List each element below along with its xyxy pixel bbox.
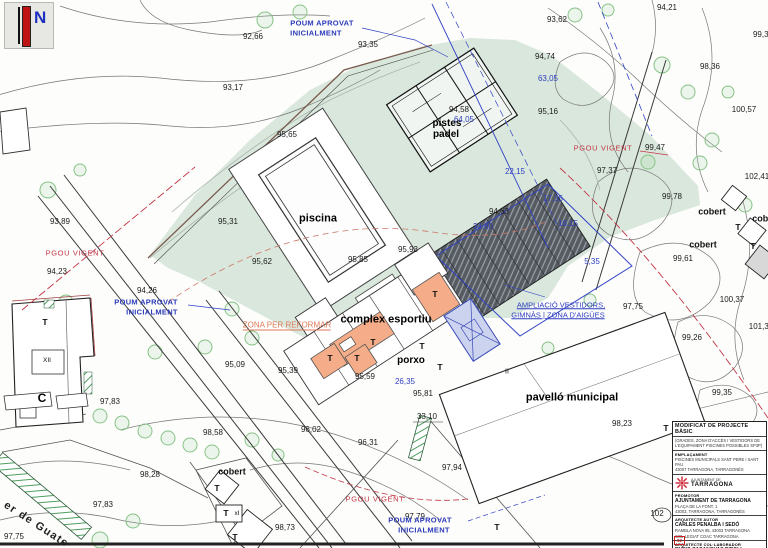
small-mark: XII (43, 358, 51, 365)
elevation-label: 95,39 (278, 367, 298, 375)
elevation-label: 94,63 (489, 208, 509, 216)
elevation-label: 94,74 (535, 53, 555, 61)
building-label: porxo (397, 356, 425, 366)
elevation-label: 97,37 (597, 167, 617, 175)
project-subtitle-2: L'EQUIPAMENT PISCINES POSSIBLES SP3P) (675, 443, 764, 448)
elevation-label: 98,28 (140, 471, 160, 479)
poum-planning-label: INICIALMENT (126, 308, 178, 316)
small-mark: II (505, 369, 509, 376)
elevation-label: 95,93 (398, 246, 418, 254)
dimension-label: 17,35 (543, 195, 563, 203)
logo-caption-big: TARRAGONA (691, 482, 733, 488)
elevation-label: 94,26 (137, 287, 157, 295)
pgou-planning-label: PGOU VIGENT (574, 144, 633, 152)
elevation-label: 98,58 (203, 429, 223, 437)
dimension-label: 26,35 (395, 378, 415, 386)
poum-planning-label: POUM APROVAT (388, 516, 451, 524)
extension-note-label: AMPLIACIÓ VESTIDORS, (517, 301, 605, 309)
tarragona-logo-icon (675, 476, 689, 490)
site-plan-canvas: 93,1792,6693,3595,6593,6294,7495,1694,21… (0, 0, 768, 548)
compass-needle-bar (22, 6, 31, 47)
elevation-label: 95,81 (413, 390, 433, 398)
dimension-label: 16,15 (558, 220, 578, 228)
elevation-label: 95,09 (225, 361, 245, 369)
compass-needle-line (18, 7, 20, 44)
elevation-label: 33,10 (417, 413, 437, 421)
small-mark: xI (234, 511, 239, 518)
elevation-label: 97,75 (4, 533, 24, 541)
north-label: N (34, 8, 46, 28)
elevation-label: 93,35 (358, 41, 378, 49)
elevation-label: 95,59 (355, 373, 375, 381)
title-block: MODIFICAT DE PROJECTE BÀSIC (GRADES, ZON… (672, 421, 767, 548)
elevation-label: 93,62 (547, 16, 567, 24)
poum-planning-label: POUM APROVAT (114, 298, 177, 306)
transformer-mark: T (370, 338, 375, 347)
dimension-label: 5,35 (584, 258, 600, 266)
transformer-mark: T (354, 354, 359, 363)
elevation-label: 96,02 (301, 426, 321, 434)
corner-code-badge: 02 (674, 536, 685, 545)
building-label: padel (433, 130, 459, 140)
dimension-label: 63,05 (538, 75, 558, 83)
project-title: MODIFICAT DE PROJECTE BÀSIC (673, 422, 766, 437)
elevation-label: 93,89 (50, 218, 70, 226)
poum-planning-label: POUM APROVAT (290, 19, 353, 27)
cobert-label: cobert (698, 208, 726, 217)
elevation-label: 93,17 (223, 84, 243, 92)
elevation-label: 97,94 (442, 464, 462, 472)
small-building (0, 108, 30, 154)
reform-zone-label: ZONA PER REFORMAR (243, 322, 331, 331)
transformer-mark: T (663, 424, 668, 433)
elevation-label: 99,31 (753, 31, 768, 39)
transformer-mark: T (419, 342, 424, 351)
elevation-label: 95,16 (538, 108, 558, 116)
elevation-label: 97,75 (623, 303, 643, 311)
elevation-label: 94,23 (47, 268, 67, 276)
transformer-mark: T (494, 523, 499, 532)
extension-note-label: GIMNÀS | ZONA D'AIGÜES (511, 311, 604, 319)
elevation-label: 95,65 (277, 131, 297, 139)
elevation-label: 101,31 (749, 323, 768, 331)
location-line-1: PISCINES MUNICIPALS SANT PERE I SANT PAU (675, 457, 764, 468)
elevation-label: 97,83 (100, 398, 120, 406)
elevation-label: 95,85 (348, 256, 368, 264)
building-label: pistes (433, 119, 462, 129)
transformer-mark: T (437, 363, 442, 372)
elevation-label: 100,57 (732, 106, 756, 114)
transformer-mark: T (42, 318, 47, 327)
dimension-label: 34,80 (473, 223, 493, 231)
elevation-label: 98,36 (700, 63, 720, 71)
promotor-name: AJUNTAMENT DE TARRAGONA (675, 498, 764, 504)
site-plan-drawing (0, 0, 768, 548)
elevation-label: 99,78 (662, 193, 682, 201)
transformer-mark: T (432, 290, 437, 299)
promotor-address-2: 43003, TARRAGONA, TARRAGONÈS (675, 509, 764, 514)
transformer-mark: T (750, 242, 755, 251)
elevation-label: 99,26 (682, 334, 702, 342)
elevation-label: 99,35 (712, 389, 732, 397)
architect-address-2: COL·LEGIAT COAC TARRAGONA (675, 534, 764, 539)
transformer-mark: T (232, 533, 237, 542)
elevation-label: 94,58 (449, 106, 469, 114)
dimension-label: 22,15 (505, 168, 525, 176)
transformer-mark: T (735, 223, 740, 232)
elevation-label: 102 (650, 510, 663, 518)
elevation-label: 92,66 (243, 33, 263, 41)
elevation-label: 99,47 (645, 144, 665, 152)
poum-planning-label: INICIALMENT (398, 526, 450, 534)
location-line-2: 43007 TARRAGONA, TARRAGONÈS (675, 467, 764, 472)
building-label: pavelló municipal (526, 393, 618, 404)
elevation-label: 98,23 (612, 420, 632, 428)
building-label: complex esportiu (340, 315, 431, 326)
pgou-planning-label: PGOU VIGENT (346, 495, 405, 503)
transformer-mark: T (223, 509, 228, 518)
cobert-label: cobert (218, 468, 246, 477)
building-label: piscina (299, 214, 337, 225)
elevation-label: 95,62 (252, 258, 272, 266)
north-compass: N (4, 2, 54, 49)
cobert-label: cobert (752, 215, 768, 224)
elevation-label: 95,31 (218, 218, 238, 226)
poum-planning-label: INICIALMENT (290, 29, 342, 37)
elevation-label: 99,61 (673, 255, 693, 263)
elevation-label: 98,73 (275, 524, 295, 532)
block-letter: C (38, 392, 47, 404)
elevation-label: 100,37 (720, 296, 744, 304)
transformer-mark: T (327, 354, 332, 363)
elevation-label: 96,31 (358, 439, 378, 447)
transformer-mark: T (214, 484, 219, 493)
elevation-label: 94,21 (657, 4, 677, 12)
elevation-label: 97,83 (93, 501, 113, 509)
pgou-planning-label: PGOU VIGENT (46, 249, 105, 257)
elevation-label: 102,41 (745, 173, 768, 181)
cobert-label: cobert (689, 241, 717, 250)
